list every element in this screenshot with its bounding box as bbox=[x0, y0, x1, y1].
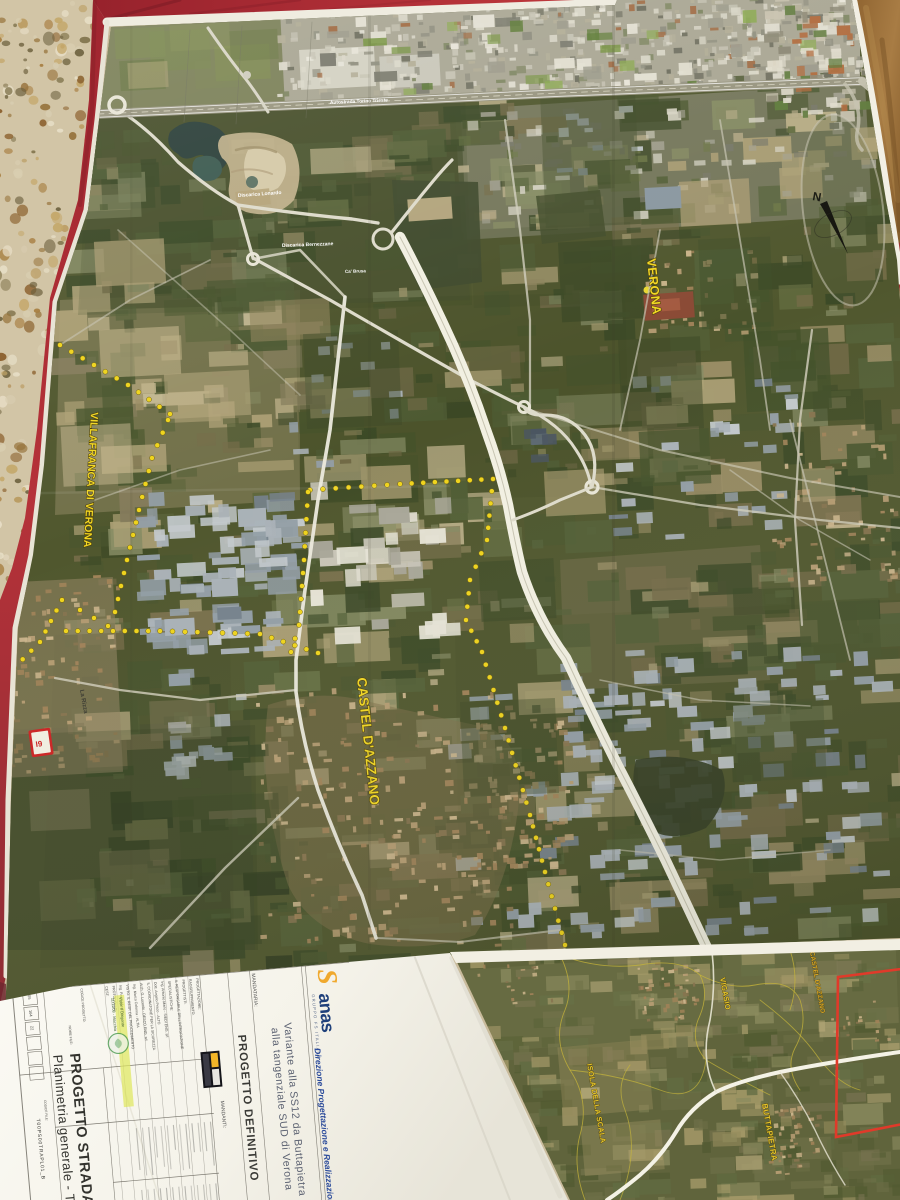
svg-text:164: 164 bbox=[28, 1010, 34, 1018]
svg-text:S: S bbox=[311, 968, 343, 986]
